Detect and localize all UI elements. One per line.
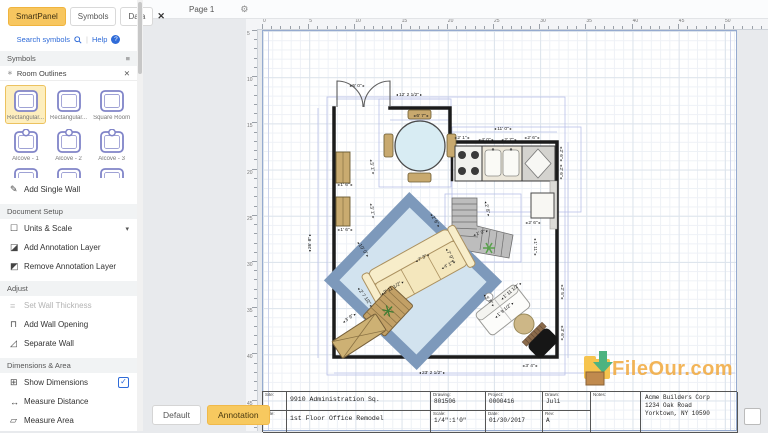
drawing-page[interactable] <box>262 30 737 431</box>
sidebar-scrollbar[interactable] <box>137 0 143 431</box>
symbol-square-room[interactable]: Square Room <box>91 85 132 124</box>
help-link[interactable]: Help <box>92 35 107 44</box>
room-shape-icon <box>55 129 83 155</box>
tool-add-wall-opening[interactable]: ⊓Add Wall Opening <box>0 315 137 334</box>
site-label: Site: <box>263 392 286 398</box>
panel-tab-list: SmartPanelSymbolsData <box>8 7 153 26</box>
tool-show-dimensions[interactable]: ⊞Show Dimensions✓ <box>0 373 137 392</box>
default-layer-button[interactable]: Default <box>152 405 201 425</box>
page-margin-guide <box>730 31 731 430</box>
opening-icon: ⊓ <box>10 319 24 330</box>
company-address: Acme Builders Corp 1234 Oak Road Yorktow… <box>641 392 737 417</box>
close-panel-icon[interactable]: ✕ <box>157 11 165 22</box>
room-shape-icon <box>55 88 83 114</box>
search-row: Search symbols | Help ? <box>0 31 137 51</box>
room-shape-icon <box>98 129 126 155</box>
tool-separate-wall[interactable]: ◿Separate Wall <box>0 334 137 353</box>
section-header-document-setup: Document Setup <box>0 204 137 219</box>
area-icon: ▱ <box>10 415 24 426</box>
symbol-label: Rectangular... <box>50 115 87 121</box>
scale-value: 1/4":1'0" <box>431 417 485 425</box>
date-value: 01/30/2017 <box>486 417 542 425</box>
page-tab-bar: ‹ Page 1 ⚙ <box>143 0 768 19</box>
symbol-label: Rectangular... <box>7 115 44 121</box>
tool-set-wall-thickness: ≡Set Wall Thickness <box>0 296 137 315</box>
page-tab[interactable]: Page 1 <box>189 5 214 14</box>
panel-tabs: SmartPanelSymbolsData ✕ <box>0 0 137 31</box>
tool-measure-area[interactable]: ▱Measure Area <box>0 411 137 430</box>
search-symbols-link[interactable]: Search symbols <box>17 35 70 44</box>
tool-label: Set Wall Thickness <box>24 301 92 310</box>
room-shape-icon[interactable] <box>12 166 40 178</box>
tab-symbols[interactable]: Symbols <box>70 7 117 26</box>
remove-layer-icon: ◩ <box>10 261 24 272</box>
page-margin-guide <box>268 31 269 430</box>
drawn-value[interactable]: Juli <box>543 398 590 406</box>
tool-units-scale[interactable]: ☐Units & Scale▾ <box>0 219 137 238</box>
add-layer-icon: ◪ <box>10 242 24 253</box>
vertical-ruler: 51015202530354045 <box>246 29 258 431</box>
symbol-label: Square Room <box>93 115 130 121</box>
tab-smartpanel[interactable]: SmartPanel <box>8 7 66 26</box>
symbol-alcove-2[interactable]: Alcove - 2 <box>48 126 89 165</box>
symbol-label: Alcove - 3 <box>93 156 130 162</box>
group-label: Room Outlines <box>17 69 67 78</box>
tool-label: Add Annotation Layer <box>24 243 101 252</box>
help-icon[interactable]: ? <box>111 35 120 44</box>
canvas-scrollbar-thumb[interactable] <box>744 408 761 425</box>
room-shape-icon <box>12 129 40 155</box>
tool-label: Measure Distance <box>24 397 88 406</box>
annotation-layer-button[interactable]: Annotation <box>207 405 270 425</box>
symbol-grid-clipped-row <box>0 165 137 178</box>
symbol-grid: Rectangular...Rectangular...Square RoomA… <box>0 81 137 165</box>
tool-sections: ✎Add Single WallDocument Setup☐Units & S… <box>0 178 137 430</box>
rev-value: A <box>543 417 590 425</box>
room-shape-icon[interactable] <box>55 166 83 178</box>
title-block: Site: 9910 Administration Sq. Drawing: 8… <box>262 391 737 432</box>
symbols-header-label: Symbols <box>7 54 36 63</box>
symbol-alcove-1[interactable]: Alcove - 1 <box>5 126 46 165</box>
room-shape-icon[interactable] <box>98 166 126 178</box>
group-expand-icon[interactable]: ∗ <box>7 69 13 77</box>
horizontal-ruler: 05101520253035404550 <box>246 18 768 30</box>
tool-label: Separate Wall <box>24 339 74 348</box>
section-header-dimensions-area: Dimensions & Area <box>0 358 137 373</box>
project-value: 0000416 <box>486 398 542 406</box>
thickness-icon: ≡ <box>10 301 24 311</box>
layer-switcher: DefaultAnnotation <box>152 405 270 425</box>
section-header-adjust: Adjust <box>0 281 137 296</box>
tool-add-single-wall[interactable]: ✎Add Single Wall <box>0 180 137 199</box>
sidebar-scrollbar-thumb[interactable] <box>138 2 142 74</box>
tool-label: Units & Scale <box>24 224 72 233</box>
room-shape-icon <box>98 88 126 114</box>
show-dimensions-checkbox[interactable]: ✓ <box>118 377 129 388</box>
tool-label: Measure Area <box>24 416 74 425</box>
separate-icon: ◿ <box>10 338 24 349</box>
tool-label: Remove Annotation Layer <box>24 262 116 271</box>
group-close-icon[interactable]: ✕ <box>124 69 130 78</box>
units-icon: ☐ <box>10 223 24 234</box>
tool-label: Add Wall Opening <box>24 320 88 329</box>
tool-add-annotation-layer[interactable]: ◪Add Annotation Layer <box>0 238 137 257</box>
title-value: 1st Floor Office Remodel <box>287 411 430 422</box>
room-outlines-group[interactable]: ∗ Room Outlines ✕ <box>0 66 137 81</box>
smart-panel-sidebar: SmartPanelSymbolsData ✕ Search symbols |… <box>0 0 138 431</box>
chevron-down-icon[interactable]: ▾ <box>125 225 129 233</box>
tool-remove-annotation-layer[interactable]: ◩Remove Annotation Layer <box>0 257 137 276</box>
drawing-value: 801506 <box>431 398 485 406</box>
symbol-label: Alcove - 1 <box>7 156 44 162</box>
notes-label: Notes: <box>591 392 640 398</box>
tool-label: Show Dimensions <box>24 378 88 387</box>
site-value: 9910 Administration Sq. <box>287 392 430 403</box>
symbols-header: Symbols ≡ <box>0 51 137 66</box>
distance-icon: ↔ <box>10 397 24 407</box>
pencil-icon: ✎ <box>10 184 24 195</box>
page-settings-gear-icon[interactable]: ⚙ <box>240 4 248 15</box>
symbol-rectangular-[interactable]: Rectangular... <box>48 85 89 124</box>
symbol-rectangular-[interactable]: Rectangular... <box>5 85 46 124</box>
tool-measure-distance[interactable]: ↔Measure Distance <box>0 392 137 411</box>
dimensions-icon: ⊞ <box>10 377 24 388</box>
divider: | <box>86 35 88 44</box>
menu-icon[interactable]: ≡ <box>126 54 130 63</box>
symbol-alcove-3[interactable]: Alcove - 3 <box>91 126 132 165</box>
tool-label: Add Single Wall <box>24 185 80 194</box>
search-icon[interactable] <box>74 36 82 44</box>
room-shape-icon <box>12 88 40 114</box>
symbol-label: Alcove - 2 <box>50 156 87 162</box>
